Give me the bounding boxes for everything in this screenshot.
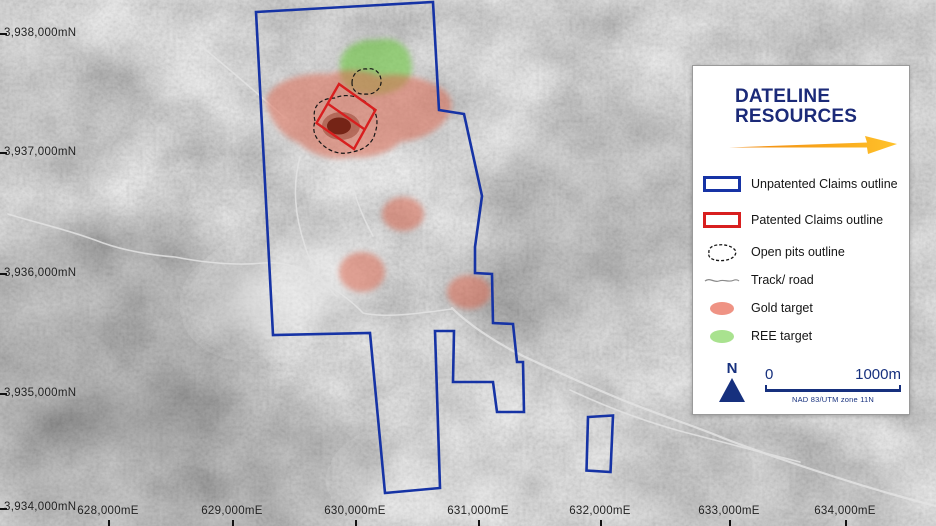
logo-line2: RESOURCES <box>735 107 909 127</box>
legend-item-label: Track/ road <box>751 273 814 287</box>
legend-item-open-pits: Open pits outline <box>693 238 909 266</box>
easting-label: 632,000mE <box>569 505 631 517</box>
track-road-icon <box>693 273 751 287</box>
easting-label: 628,000mE <box>77 505 139 517</box>
legend-item-label: REE target <box>751 329 812 343</box>
datum-label: NAD 83/UTM zone 11N <box>765 395 901 404</box>
legend-item-label: Open pits outline <box>751 245 845 259</box>
legend-items: Unpatented Claims outline Patented Claim… <box>693 166 909 350</box>
pit-floor <box>322 112 360 140</box>
legend-item-track: Track/ road <box>693 266 909 294</box>
northing-label: 3,937,000mN <box>4 146 38 158</box>
grid-tick <box>232 520 234 526</box>
northing-label: 3,934,000mN <box>4 501 38 513</box>
grid-tick <box>355 520 357 526</box>
gold-target-blob <box>382 197 424 231</box>
legend-item-ree: REE target <box>693 322 909 350</box>
grid-tick <box>108 520 110 526</box>
map-view: 3,938,000mN 3,937,000mN 3,936,000mN 3,93… <box>0 0 936 526</box>
scale-bar: 0 1000m NAD 83/UTM zone 11N <box>765 366 901 404</box>
easting-label: 631,000mE <box>447 505 509 517</box>
north-arrow: N <box>715 362 749 402</box>
grid-tick <box>478 520 480 526</box>
scale-max: 1000m <box>855 366 901 383</box>
north-arrow-icon <box>719 378 745 402</box>
grid-tick <box>600 520 602 526</box>
easting-label: 630,000mE <box>324 505 386 517</box>
legend-item-patented: Patented Claims outline <box>693 202 909 238</box>
easting-label: 633,000mE <box>698 505 760 517</box>
northing-label: 3,938,000mN <box>4 27 38 39</box>
grid-tick <box>729 520 731 526</box>
grid-tick <box>0 33 7 35</box>
patented-claims-icon <box>693 212 751 228</box>
easting-label: 629,000mE <box>201 505 263 517</box>
grid-tick <box>0 508 7 510</box>
grid-tick <box>0 273 7 275</box>
scale-line <box>765 385 901 392</box>
northing-label: 3,935,000mN <box>4 387 38 399</box>
company-logo: DATELINE RESOURCES <box>735 87 909 127</box>
easting-label: 634,000mE <box>814 505 876 517</box>
open-pits-icon <box>693 241 751 263</box>
legend-item-label: Unpatented Claims outline <box>751 177 898 191</box>
gold-target-blob <box>447 275 491 309</box>
legend-item-label: Patented Claims outline <box>751 213 883 227</box>
gold-target-blob <box>339 252 385 292</box>
grid-tick <box>845 520 847 526</box>
legend-item-unpatented: Unpatented Claims outline <box>693 166 909 202</box>
gold-target-icon <box>693 302 751 315</box>
logo-arrow-icon <box>727 134 899 156</box>
grid-tick <box>0 152 7 154</box>
unpatented-claims-icon <box>693 176 751 192</box>
northing-label: 3,936,000mN <box>4 267 38 279</box>
grid-tick <box>0 393 7 395</box>
ree-target-icon <box>693 330 751 343</box>
scale-zero: 0 <box>765 366 773 383</box>
north-label: N <box>715 362 749 376</box>
legend-panel: DATELINE RESOURCES Unpatented Claims out… <box>692 65 910 415</box>
legend-item-label: Gold target <box>751 301 813 315</box>
legend-item-gold: Gold target <box>693 294 909 322</box>
logo-line1: DATELINE <box>735 87 909 107</box>
